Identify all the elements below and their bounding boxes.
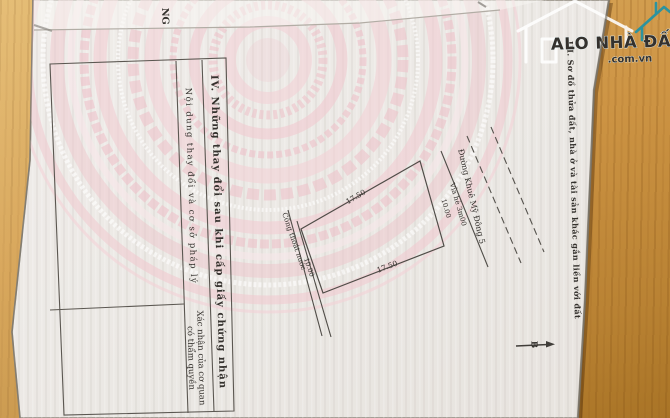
logo-domain-text: .com.vn	[608, 53, 653, 65]
cutoff-text-ng: NG	[159, 8, 171, 25]
north-label: B	[528, 341, 538, 349]
photo-scene: NG IV. Những thay đổi sau khi cấp giấy c…	[0, 0, 670, 418]
certificate-photo: NG IV. Những thay đổi sau khi cấp giấy c…	[0, 0, 670, 418]
